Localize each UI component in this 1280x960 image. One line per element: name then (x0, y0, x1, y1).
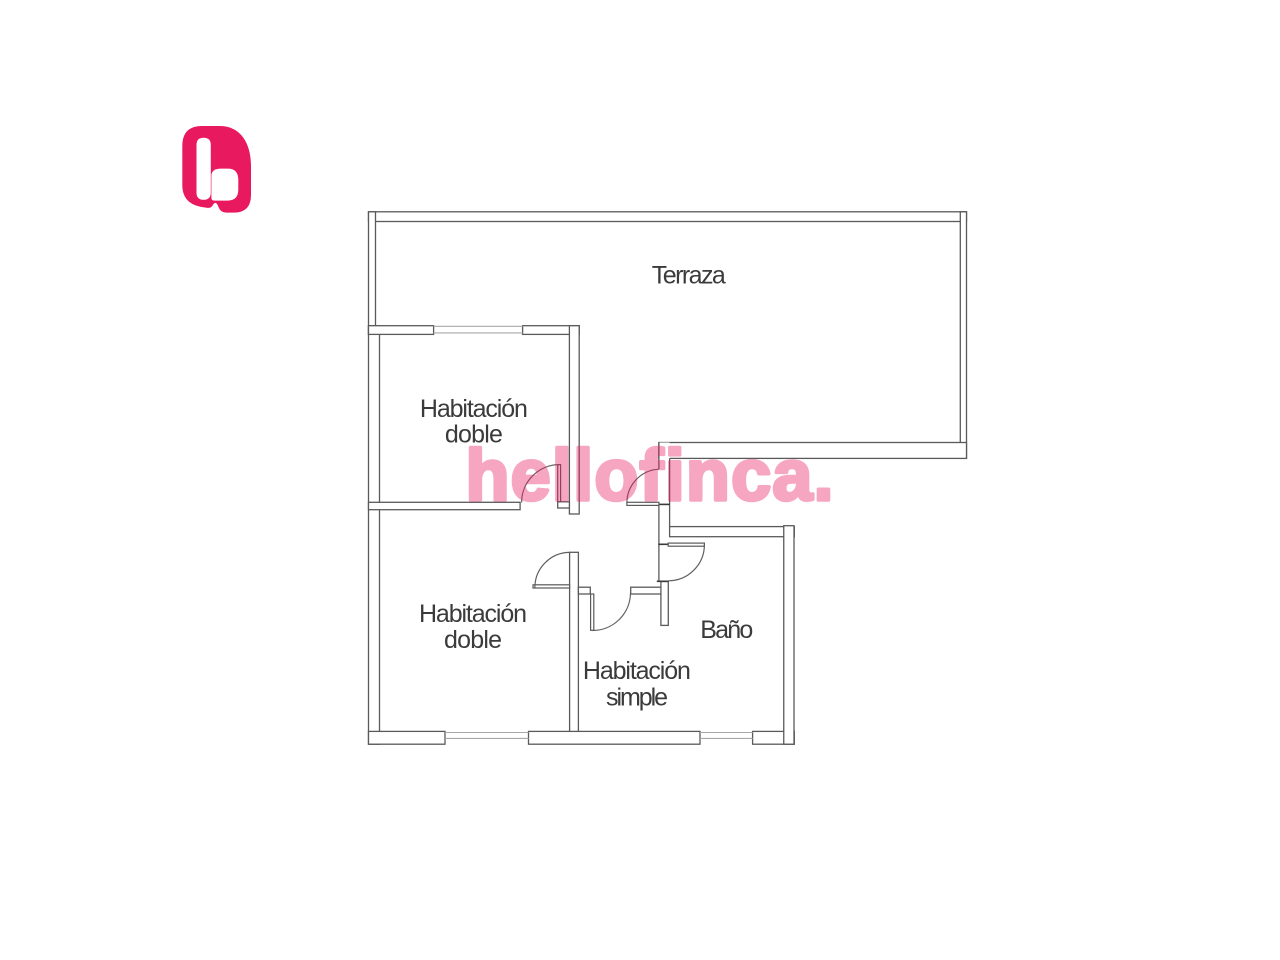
svg-text:simple: simple (606, 683, 668, 711)
svg-text:Baño: Baño (700, 616, 753, 644)
svg-text:Habitación: Habitación (419, 600, 527, 628)
svg-text:hellofinca.: hellofinca. (466, 436, 835, 516)
svg-text:doble: doble (444, 626, 502, 654)
svg-text:Terraza: Terraza (652, 262, 726, 290)
svg-text:Habitación: Habitación (583, 657, 691, 685)
svg-text:Habitación: Habitación (420, 395, 528, 423)
